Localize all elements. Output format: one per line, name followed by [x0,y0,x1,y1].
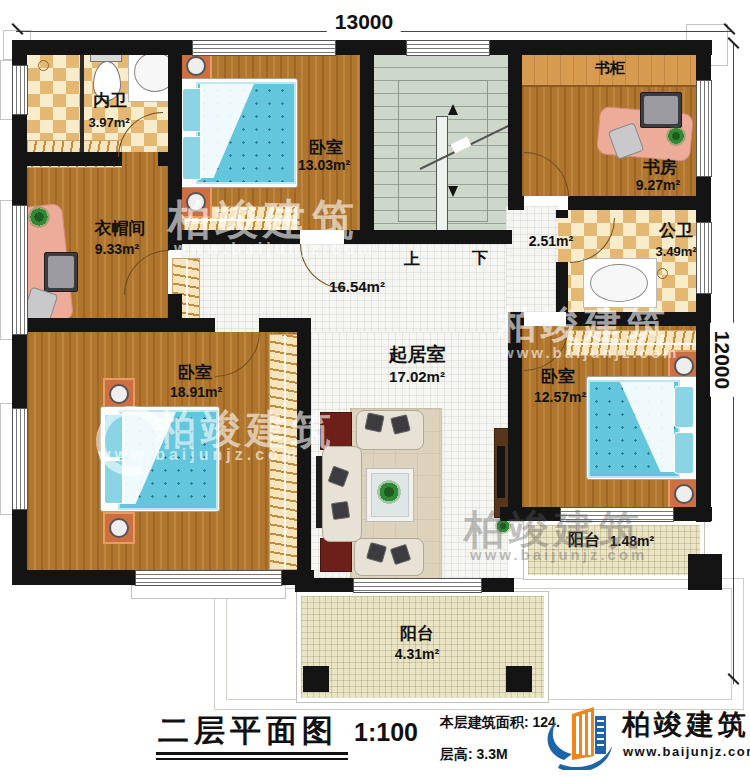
company-url-text: www.baijunjz.com [623,744,750,759]
pillow [104,460,124,504]
room-area-hallway-small: 2.51m² [529,233,573,249]
window [12,65,28,115]
room-area-cloakroom: 9.33m² [95,241,139,257]
pillow [674,432,694,474]
plan-title: 二层平面图 [158,710,338,752]
coffee-table-plant-icon [377,480,401,504]
wall [508,312,524,326]
wall [360,40,374,244]
room-label-cloakroom: 衣帽间 [95,217,146,240]
stair-rail [436,116,448,240]
wall [480,578,514,592]
tv-icon-right [497,446,505,498]
dimension-right-value: 12000 [710,323,734,397]
pillar [688,554,722,590]
wall [12,40,27,65]
window [12,408,28,510]
wall [696,40,711,80]
study-plant-icon [666,126,686,146]
window [12,205,28,335]
tv-cabinet-bottom [320,538,352,572]
wall [12,40,192,55]
room-area-balcony-right: 1.48m² [610,533,654,549]
window [406,40,490,56]
window [353,578,482,593]
label-bookcase: 书柜 [595,59,625,78]
room-label-bedroom-right: 卧室 [541,365,575,388]
window [696,80,712,177]
sofa-left [322,446,362,542]
room-area-inner-bath: 3.97m² [88,115,129,130]
pillow [182,136,202,180]
dimension-top-value: 13000 [327,10,401,34]
sofa-cushion [364,412,384,432]
wall [672,507,712,521]
room-area-public-bath: 3.49m² [655,244,696,259]
wall [556,210,568,218]
wall [12,113,27,205]
room-label-public-bath: 公卫 [659,219,693,242]
sill-bottom-left [131,585,286,599]
cloakroom-plant-icon [28,206,50,228]
wall [297,318,311,584]
wall [508,40,522,210]
room-label-study: 书房 [643,156,677,179]
window [192,40,336,56]
pillow [674,386,694,428]
room-area-bedroom-left: 18.91m² [170,384,222,400]
wall [556,262,568,312]
tv-cabinet-top [320,412,352,450]
room-label-balcony-right: 阳台 [568,530,600,551]
floor-plan-canvas: 内卫 3.97m² 卧室 13.03m² 衣帽间 9.33m² 书柜 书房 9.… [0,0,750,777]
stair-arrow-down-icon [448,186,458,197]
window [135,570,282,586]
closet-bedroom-left [269,334,299,570]
wall [508,326,522,521]
sofa-bottom [354,538,424,576]
shower-divider [80,47,84,152]
stairs-up-label: 上 [404,249,420,270]
room-area-corridor: 16.54m² [329,278,385,295]
nightstand [103,512,135,544]
room-label-living: 起居室 [389,342,446,368]
floor-drain-icon [38,60,49,71]
room-area-bedroom-right: 12.57m² [534,389,586,405]
company-logo-icon [534,700,622,770]
hallway-small-floor [506,206,558,312]
shower-head-icon [657,268,668,279]
balcony-right-floor [524,521,704,579]
wall [508,196,524,210]
cloakroom-monitor-icon [44,252,78,292]
sink-icon-public-bath [590,264,648,302]
window [696,222,712,294]
pillar [506,666,532,692]
window [560,507,674,522]
wall [27,152,122,166]
study-monitor-icon [640,92,682,128]
room-area-balcony-bottom: 4.31m² [395,646,439,662]
title-underline-1 [156,752,348,755]
wall [696,292,711,522]
room-label-balcony-bottom: 阳台 [400,622,434,645]
wall [566,312,696,326]
room-label-bedroom-left: 卧室 [178,361,212,384]
room-area-bedroom-top: 13.03m² [298,157,350,173]
wall [696,175,711,222]
company-brand-text: 柏竣建筑 [622,706,750,744]
wall [27,318,215,332]
pillow [182,88,202,132]
title-underline-2 [156,758,348,760]
sofa-cushion [331,501,350,520]
room-area-study: 9.27m² [636,177,680,193]
floor-height-text: 层高: 3.3M [440,746,508,764]
room-area-living: 17.02m² [389,368,445,385]
wall [182,230,300,244]
wall [12,570,135,585]
nightstand [180,186,212,218]
plan-scale: 1:100 [354,718,418,747]
stair-arrow-up-icon [448,104,458,115]
pillar [303,666,329,692]
wall [168,40,182,250]
wall [12,333,27,408]
room-label-bedroom-top: 卧室 [309,136,343,159]
wall [568,196,696,210]
room-label-inner-bath: 内卫 [93,89,127,112]
stairs-down-label: 下 [472,248,488,269]
pillow [104,414,124,458]
